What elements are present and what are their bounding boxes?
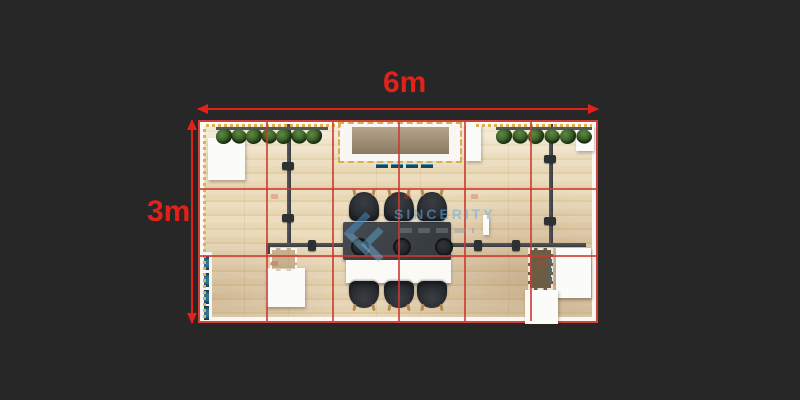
stool [393, 238, 411, 256]
grid-line [266, 122, 268, 321]
grid-line [464, 122, 466, 321]
height-dimension-arrow [191, 120, 193, 323]
chair [349, 281, 379, 308]
string-lights-top-left [206, 124, 342, 127]
truss-clamp [282, 214, 294, 222]
chair [349, 192, 379, 221]
grid-line [200, 255, 596, 257]
plant-icon [306, 129, 322, 144]
truss-clamp [474, 240, 482, 251]
grid-mark [471, 194, 478, 199]
counter-top-left [208, 138, 245, 180]
truss-clamp [308, 240, 316, 251]
grid-mark [271, 194, 278, 199]
back-display-light-frame [338, 122, 462, 163]
counter-right-of-display [466, 124, 481, 161]
grid-mark [404, 194, 411, 199]
display-equipment [406, 164, 418, 168]
grid-line [200, 188, 596, 190]
width-dimension-label: 6m [383, 68, 426, 98]
truss-clamp [512, 240, 520, 251]
grid-mark [271, 261, 278, 266]
booth-floorplan: SINCERITY [198, 120, 598, 323]
display-equipment [391, 164, 403, 168]
perforated-panel [270, 248, 297, 271]
truss-clamp [544, 155, 556, 163]
string-lights-left-edge [203, 128, 206, 318]
chair [417, 192, 447, 221]
table-bottom-left [266, 268, 305, 307]
stool [435, 238, 453, 256]
truss-clamp [544, 217, 556, 225]
render-canvas: 6m 3m [0, 0, 800, 400]
small-white-panel [483, 215, 489, 235]
plant-icon [246, 129, 262, 144]
plant-icon [560, 129, 576, 144]
string-lights-top-right [476, 124, 592, 127]
grid-line [398, 122, 400, 321]
stool [351, 238, 369, 256]
height-dimension-label: 3m [147, 197, 190, 227]
plant-rail-right [496, 127, 592, 130]
grid-line [530, 122, 532, 321]
grid-mark [538, 261, 545, 266]
display-equipment [376, 164, 388, 168]
display-equipment [421, 164, 433, 168]
width-dimension-arrow [198, 108, 598, 110]
chair [417, 281, 447, 308]
plant-icon [496, 129, 512, 144]
grid-line [332, 122, 334, 321]
truss-clamp [282, 162, 294, 170]
